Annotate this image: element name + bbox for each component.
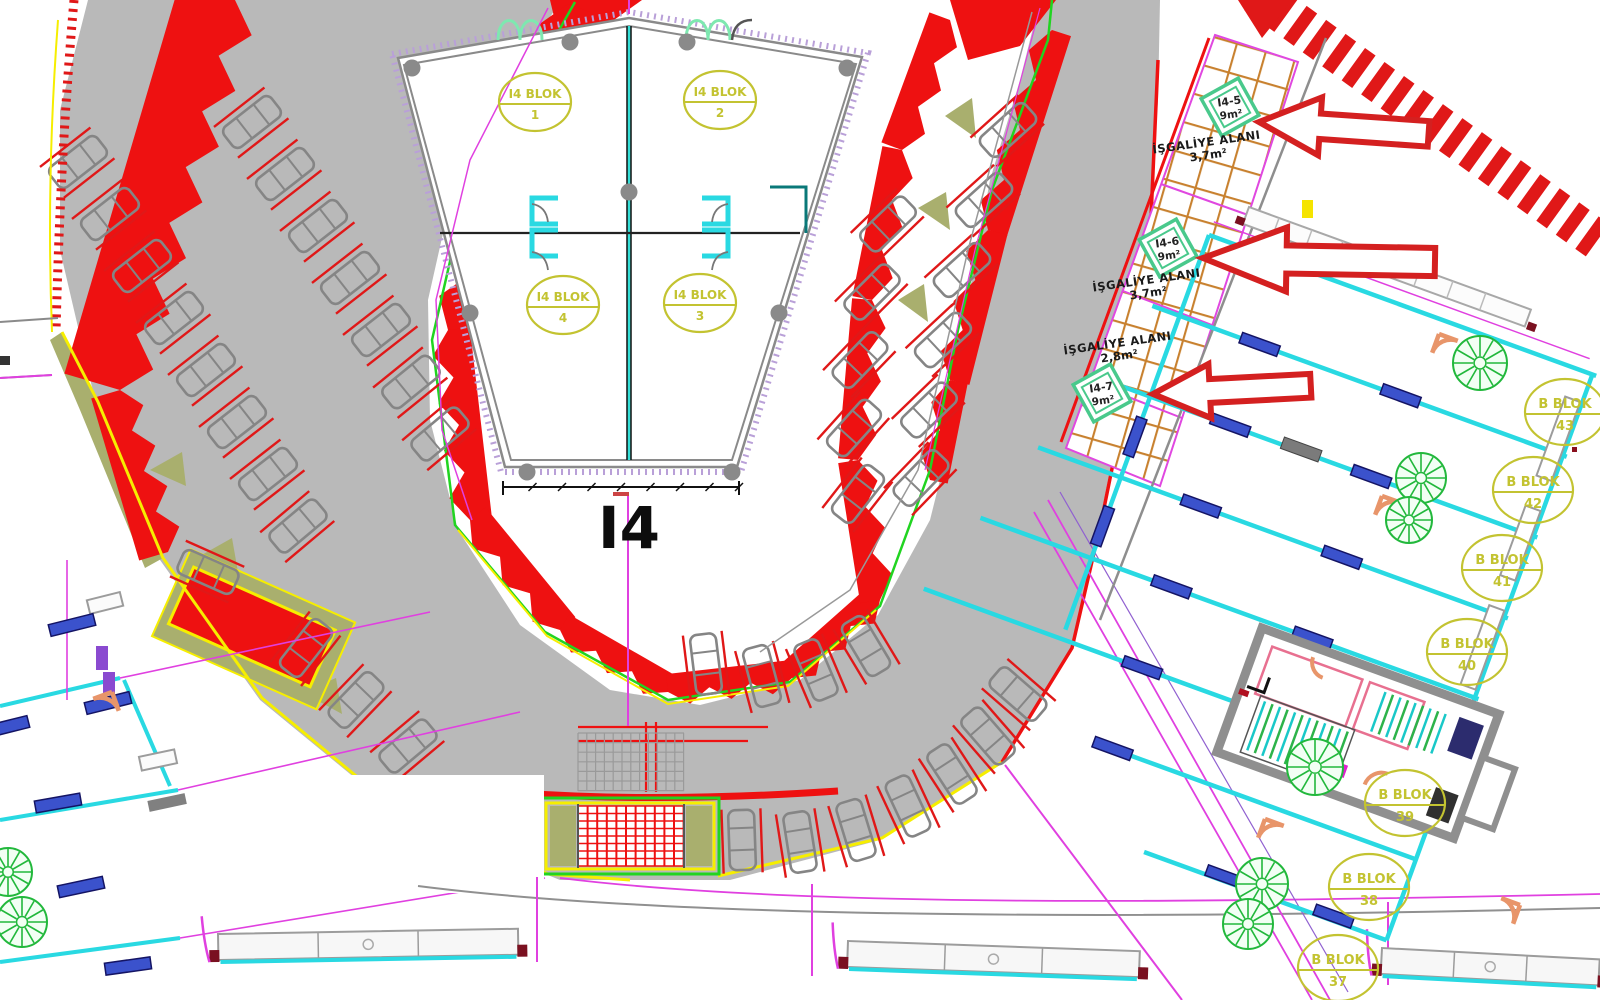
column-dot: [621, 184, 638, 201]
bubble-label: I4 BLOK: [694, 85, 748, 99]
balcony-unit: [202, 911, 528, 963]
diamond-text: I4-79m²: [1088, 379, 1115, 408]
column-dot: [519, 464, 536, 481]
bubble-label: B BLOK: [1538, 397, 1592, 412]
tree-icon: [0, 848, 32, 896]
column-dot: [462, 305, 479, 322]
car-window: [729, 850, 755, 851]
column-dot: [404, 60, 421, 77]
red-rail-start: [1238, 0, 1292, 38]
balcony-tick: [1042, 948, 1043, 974]
window-rect: [48, 614, 96, 637]
car-window: [692, 651, 718, 654]
white-patch: [348, 775, 544, 893]
survey-marker: [0, 356, 10, 365]
bubble-label: B BLOK: [1342, 872, 1396, 887]
window-block: [48, 614, 96, 637]
car-window: [905, 476, 924, 494]
tree-icon: [0, 897, 47, 947]
bubble-label: B BLOK: [1311, 953, 1365, 968]
tree-icon: [1223, 899, 1273, 949]
bubble-number: 3: [696, 309, 704, 323]
column-dot: [771, 305, 788, 322]
left-balcony-rail: [87, 592, 123, 614]
balcony-unit: [831, 922, 1149, 979]
bubble-number: 4: [559, 311, 567, 325]
car-window: [927, 337, 945, 356]
tree-icon: [1453, 336, 1507, 390]
bubble-number: 42: [1524, 497, 1542, 512]
top-left-boundary: [0, 0, 74, 378]
yellow-boundary-thin: [50, 20, 58, 332]
crossing-olive-right: [686, 806, 712, 866]
rail-endcap: [1526, 322, 1537, 333]
site-plan-page: I4 I4-59m²I4-69m²I4-79m² İŞGALİYE ALANI3…: [0, 0, 1600, 1000]
window-rect: [0, 716, 30, 739]
diamond-text: I4-69m²: [1154, 234, 1182, 263]
khaki-wedge: [918, 192, 950, 230]
diamond-text: I4-59m²: [1216, 93, 1243, 122]
stall-line: [884, 442, 928, 488]
bubble-number: 2: [716, 106, 724, 120]
door-swing-icon: [1258, 819, 1284, 845]
b-block-bubble: B BLOK38: [1329, 854, 1409, 920]
site-plan-drawing: I4 I4-59m²I4-69m²I4-79m² İŞGALİYE ALANI3…: [0, 0, 1600, 1000]
balcony-endcap: [838, 957, 848, 969]
b-block-bubble: B BLOK37: [1298, 935, 1378, 1000]
balcony-endcap: [517, 945, 527, 957]
balcony-unit: [1365, 929, 1600, 988]
left-purple-fixture: [96, 646, 108, 670]
balcony-endcap: [209, 950, 219, 962]
balcony-endcap: [1138, 967, 1148, 979]
survey-lines: [0, 318, 58, 378]
window-block: [57, 876, 104, 897]
window-block: [104, 957, 151, 975]
bubble-label: I4 BLOK: [537, 290, 591, 304]
bubble-number: 43: [1556, 419, 1574, 434]
car-window: [729, 828, 755, 829]
column-dot: [562, 34, 579, 51]
bubble-number: 39: [1396, 810, 1414, 825]
left-balcony-rail: [139, 749, 177, 770]
door-swing-arc: [1258, 819, 1284, 845]
bottom-magenta-curve: [560, 878, 1600, 901]
yellow-marker: [1302, 200, 1313, 218]
window-block: [0, 716, 30, 739]
bubble-number: 40: [1458, 659, 1476, 674]
column-dot: [679, 34, 696, 51]
balcony-magenta-bracket: [202, 916, 210, 962]
bubble-number: 1: [531, 108, 539, 122]
bottom-balconies: [202, 911, 1600, 988]
tree-icon: [1386, 497, 1432, 543]
column-dot: [839, 60, 856, 77]
red-parking-strip: [881, 12, 957, 150]
bubble-label: B BLOK: [1378, 788, 1432, 803]
stall-line: [906, 305, 953, 349]
column-dot: [724, 464, 741, 481]
bubble-number: 38: [1360, 894, 1378, 909]
red-parking-strip: [838, 298, 886, 460]
survey-magenta: [0, 375, 52, 378]
bubble-circle: [1329, 854, 1409, 920]
tree-icon: [1287, 739, 1343, 795]
bubble-number: 41: [1493, 575, 1511, 590]
window-rect: [104, 957, 151, 975]
bubble-label: B BLOK: [1440, 637, 1494, 652]
bubble-number: 37: [1329, 975, 1347, 990]
bubble-label: I4 BLOK: [674, 288, 728, 302]
crossing-olive-left: [550, 806, 576, 866]
building-title: I4: [598, 494, 660, 562]
tree-icon: [1396, 453, 1446, 503]
balcony-tick: [944, 944, 945, 970]
red-dot-marker: [1572, 447, 1577, 452]
bubble-label: B BLOK: [1506, 475, 1560, 490]
khaki-wedge: [945, 98, 976, 138]
bubble-label: B BLOK: [1475, 553, 1529, 568]
window-rect: [57, 876, 104, 897]
balcony-rail: [218, 929, 518, 960]
bubble-label: I4 BLOK: [509, 87, 563, 101]
